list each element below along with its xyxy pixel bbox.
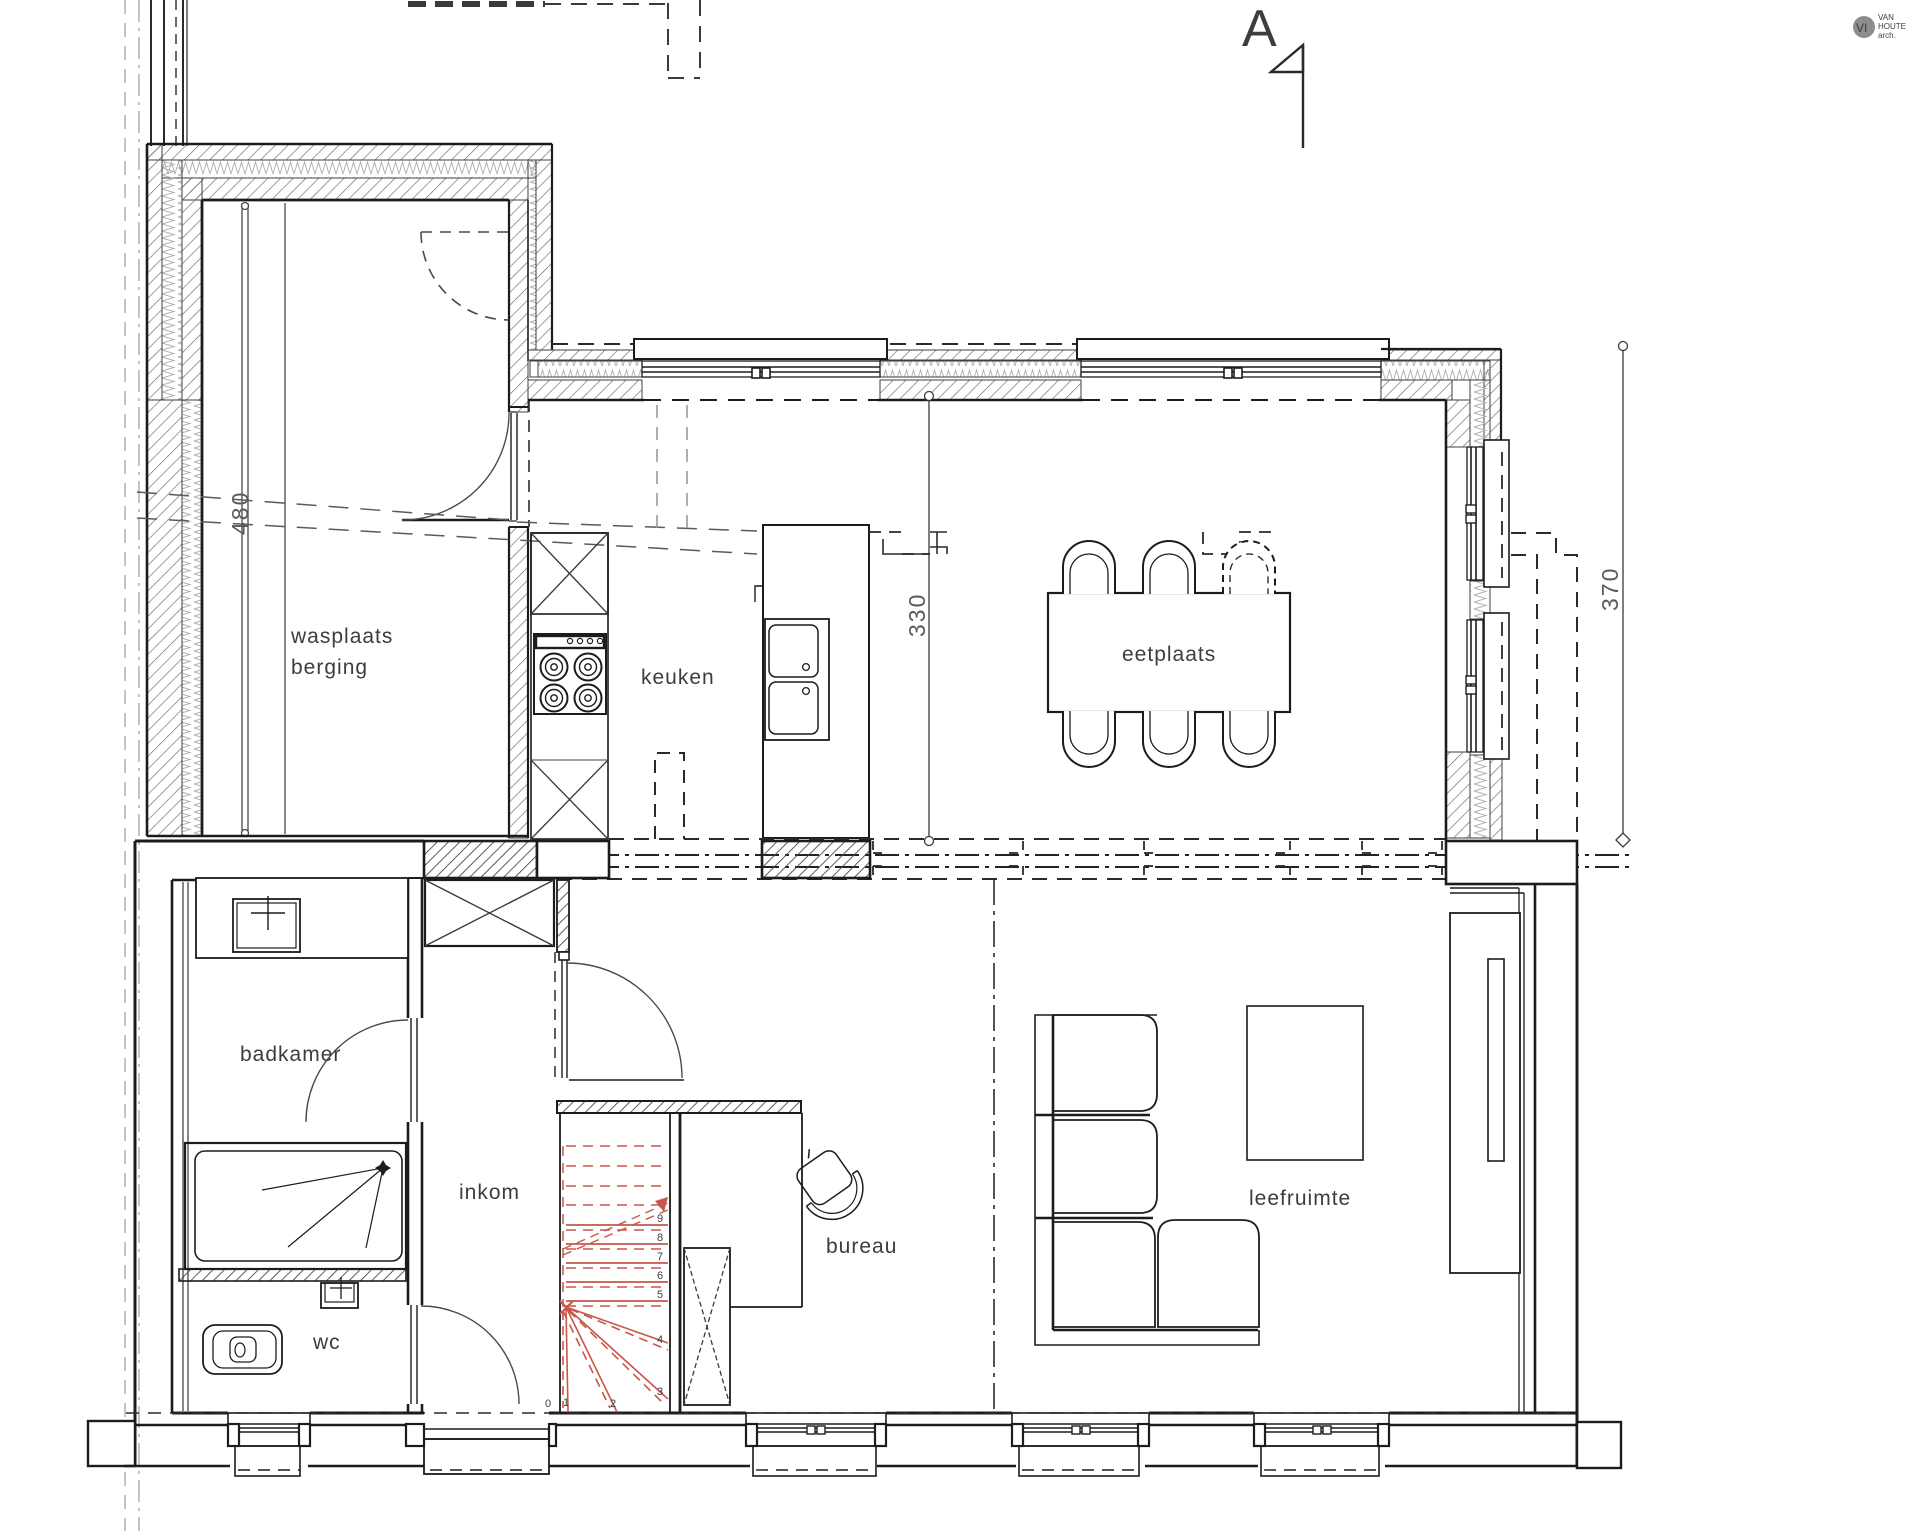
svg-text:370: 370 (1597, 567, 1623, 611)
svg-text:HOUTE: HOUTE (1878, 22, 1906, 31)
svg-text:480: 480 (227, 491, 253, 535)
svg-text:inkom: inkom (459, 1181, 520, 1204)
svg-text:berging: berging (291, 656, 368, 679)
svg-text:VI: VI (1856, 21, 1867, 35)
svg-text:330: 330 (904, 593, 930, 637)
svg-text:badkamer: badkamer (240, 1043, 341, 1066)
svg-text:leefruimte: leefruimte (1249, 1187, 1351, 1210)
svg-text:5: 5 (657, 1289, 663, 1301)
svg-text:3: 3 (657, 1386, 663, 1398)
svg-text:A: A (1242, 0, 1277, 58)
svg-text:4: 4 (657, 1334, 663, 1346)
svg-text:7: 7 (657, 1251, 663, 1263)
svg-text:wasplaats: wasplaats (290, 625, 393, 648)
svg-text:2: 2 (610, 1398, 616, 1410)
svg-text:wc: wc (312, 1331, 341, 1354)
svg-text:eetplaats: eetplaats (1122, 643, 1216, 666)
svg-text:8: 8 (657, 1232, 663, 1244)
svg-text:1: 1 (563, 1397, 569, 1409)
svg-text:9: 9 (657, 1213, 663, 1225)
svg-text:6: 6 (657, 1270, 663, 1282)
svg-text:keuken: keuken (641, 666, 715, 689)
svg-text:arch.: arch. (1878, 31, 1896, 40)
svg-text:VAN: VAN (1878, 13, 1894, 22)
svg-text:bureau: bureau (826, 1235, 897, 1258)
svg-text:0: 0 (545, 1398, 551, 1410)
